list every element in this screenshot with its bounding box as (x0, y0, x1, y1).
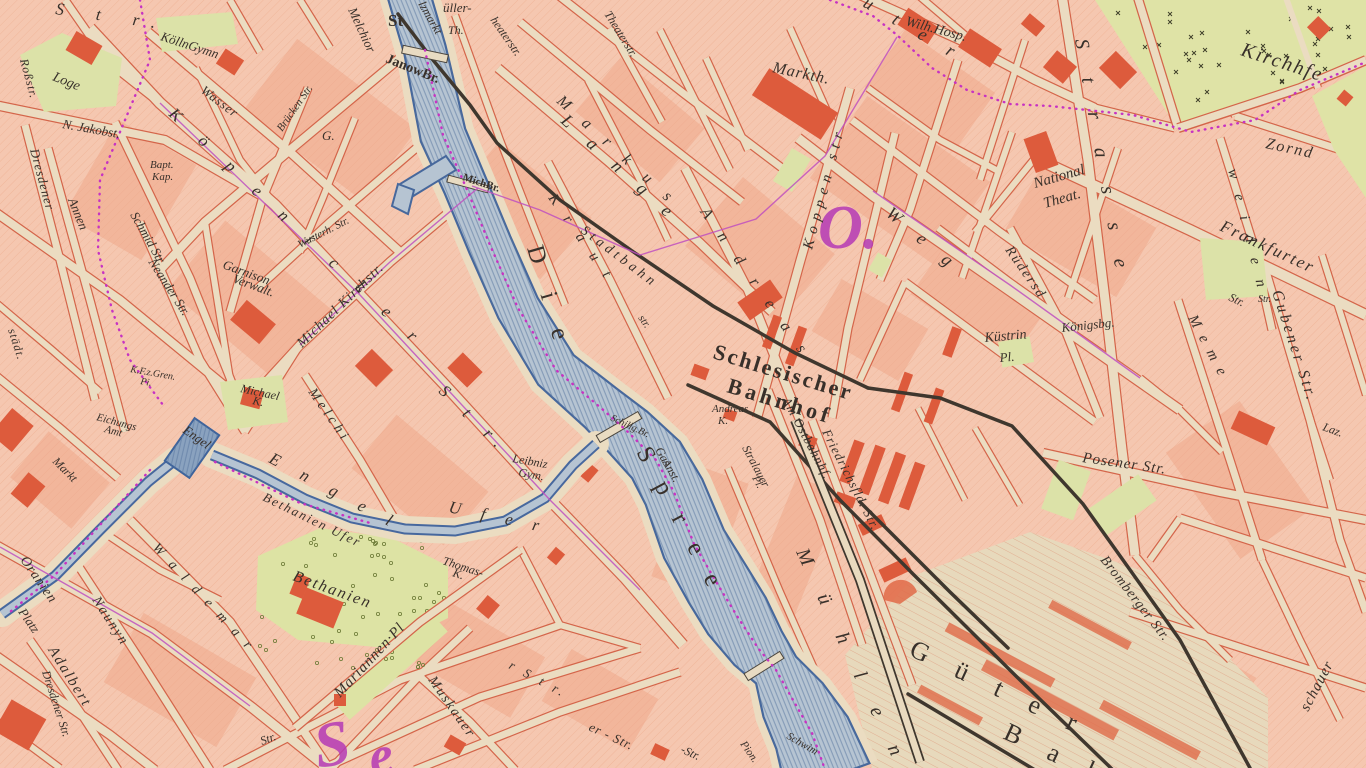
svg-text:G.: G. (322, 128, 335, 143)
svg-text:Andreas: Andreas (711, 403, 748, 415)
svg-text:Bapt.: Bapt. (150, 159, 174, 171)
svg-text:üller-: üller- (443, 0, 472, 15)
svg-text:Pl.: Pl. (998, 349, 1015, 365)
svg-text:Kap.: Kap. (151, 171, 173, 183)
svg-text:K.: K. (717, 415, 728, 427)
svg-text:Pi.: Pi. (138, 376, 152, 389)
svg-text:St: St (388, 11, 403, 30)
svg-text:Th.: Th. (448, 23, 464, 37)
